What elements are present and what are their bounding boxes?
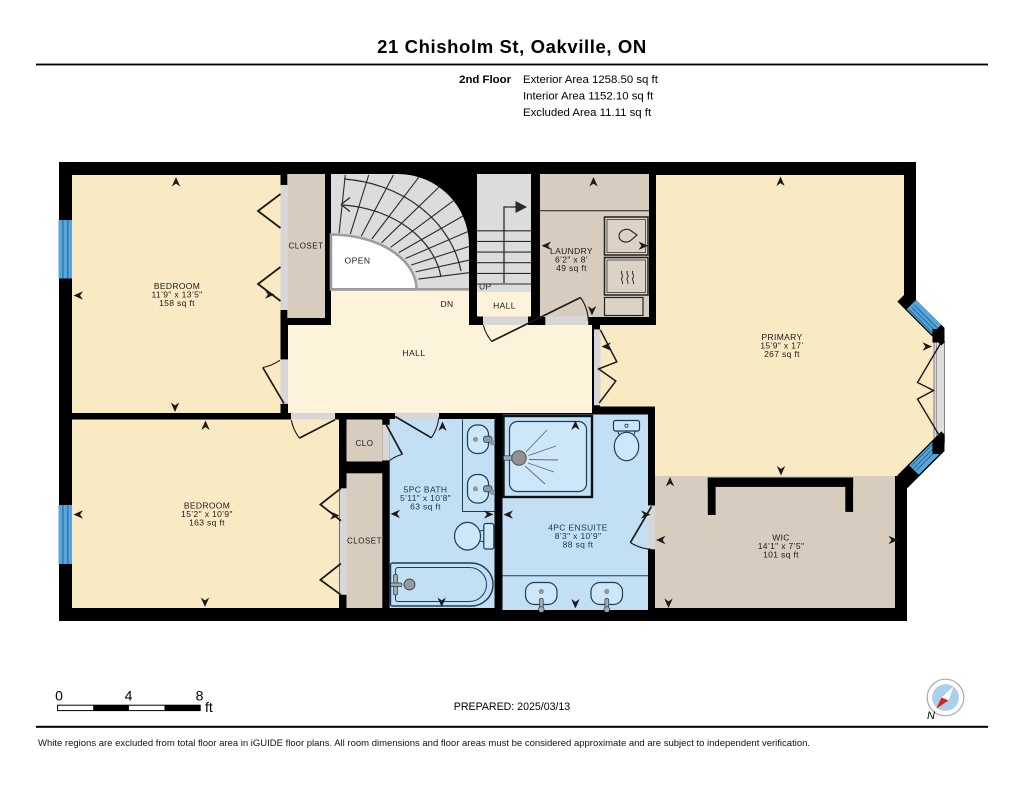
svg-text:Exterior Area 1258.50 sq ft: Exterior Area 1258.50 sq ft: [523, 74, 659, 86]
svg-text:CLO: CLO: [356, 439, 374, 448]
svg-text:UP: UP: [479, 282, 492, 292]
svg-text:267 sq ft: 267 sq ft: [764, 349, 800, 359]
svg-text:ft: ft: [205, 699, 213, 715]
svg-text:2nd Floor: 2nd Floor: [459, 74, 511, 86]
svg-text:0: 0: [55, 688, 63, 704]
svg-text:Interior Area 1152.10 sq ft: Interior Area 1152.10 sq ft: [523, 91, 654, 103]
svg-text:21 Chisholm St, Oakville, ON: 21 Chisholm St, Oakville, ON: [377, 36, 647, 57]
svg-text:CLOSET: CLOSET: [347, 537, 382, 546]
svg-text:PREPARED: 2025/03/13: PREPARED: 2025/03/13: [454, 701, 571, 713]
svg-text:88 sq ft: 88 sq ft: [563, 540, 594, 550]
svg-text:101 sq ft: 101 sq ft: [763, 550, 799, 560]
svg-text:Excluded Area 11.11 sq ft: Excluded Area 11.11 sq ft: [523, 107, 652, 119]
svg-text:White regions are excluded fro: White regions are excluded from total fl…: [38, 738, 810, 749]
svg-text:HALL: HALL: [402, 348, 425, 358]
svg-text:N: N: [927, 710, 935, 722]
svg-text:8: 8: [196, 688, 204, 704]
svg-text:63 sq ft: 63 sq ft: [410, 502, 441, 512]
svg-text:163 sq ft: 163 sq ft: [189, 518, 225, 528]
svg-text:DN: DN: [440, 299, 453, 309]
svg-text:49 sq ft: 49 sq ft: [556, 263, 587, 273]
svg-text:OPEN: OPEN: [344, 256, 370, 266]
svg-text:HALL: HALL: [493, 301, 516, 311]
svg-text:CLOSET: CLOSET: [288, 242, 323, 251]
svg-text:4: 4: [125, 688, 133, 704]
svg-text:158 sq ft: 158 sq ft: [159, 298, 195, 308]
